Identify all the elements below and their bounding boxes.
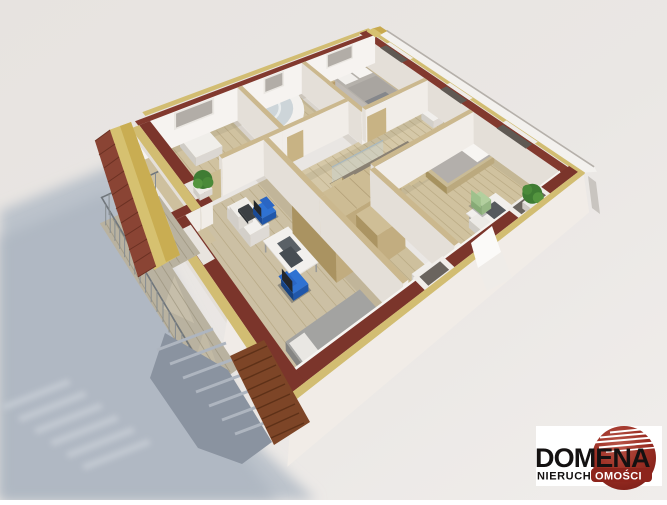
svg-text:OMOŚCI: OMOŚCI: [595, 470, 642, 483]
svg-text:NIERUCH: NIERUCH: [537, 471, 591, 483]
svg-text:DOMENA: DOMENA: [535, 443, 650, 473]
